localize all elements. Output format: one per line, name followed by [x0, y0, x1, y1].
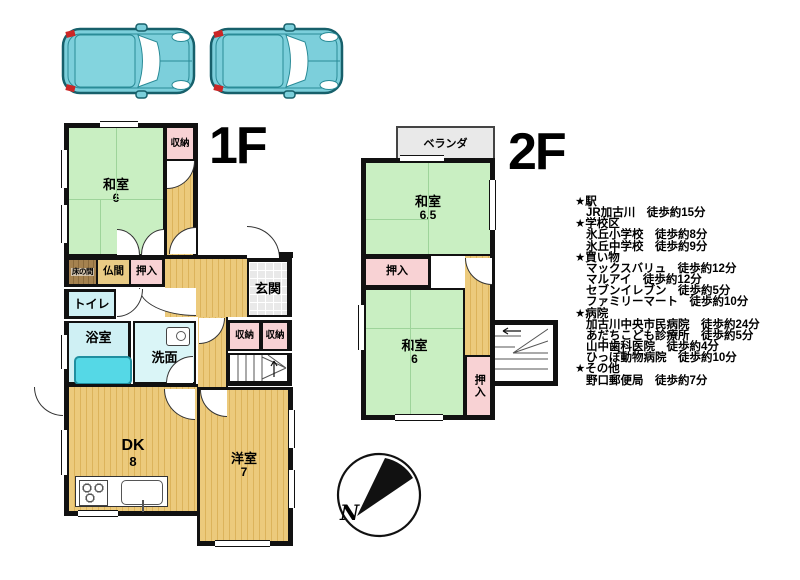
access-info-list: ★駅 JR加古川 徒歩約15分 ★学校区 氷丘小学校 徒歩約8分 氷丘中学校 徒… [575, 197, 797, 387]
window [61, 150, 68, 188]
bathtub-icon [74, 356, 132, 385]
floor-1-label: 1F [209, 116, 266, 176]
room-label: 洋室 [231, 452, 257, 466]
room-label: 和室 [401, 339, 427, 353]
kitchen-sink-icon [121, 480, 163, 505]
room-toilet-1f: トイレ [64, 289, 116, 319]
room-label: 仏間 [103, 266, 124, 277]
room-label: 押入 [136, 266, 157, 277]
room-oshiire-b-2f: 押入 [465, 355, 495, 420]
front-door-arc [247, 226, 280, 258]
room-shuno-b-1f: 収納 [261, 320, 292, 351]
window [61, 205, 68, 243]
kitchen-counter [75, 476, 168, 507]
room-shuno-top-1f: 収納 [165, 123, 198, 161]
info-heading: ★その他 [575, 364, 797, 375]
room-oshiire-1f: 押入 [131, 257, 165, 287]
stairs-2f [495, 320, 558, 386]
room-washitsu6-2f: 和室 6 [361, 288, 465, 420]
window [78, 510, 118, 517]
room-size: 8 [129, 455, 136, 469]
room-label: 収納 [235, 331, 254, 341]
room-tokonoma-1f: 床の間 [64, 257, 98, 287]
stairs-1f [228, 353, 292, 386]
room-oshiire-a-2f: 押入 [361, 256, 431, 288]
room-washitsu65-2f: 和室 6.5 [361, 158, 495, 256]
info-item: 氷丘小学校 徒歩約8分 [586, 230, 797, 241]
window [61, 430, 68, 475]
door-arc [139, 288, 196, 316]
stove-icon [79, 480, 108, 506]
room-label: DK [121, 438, 144, 455]
car-top-view-icon [60, 22, 198, 100]
window [61, 335, 68, 369]
room-bath-1f: 浴室 [64, 321, 131, 385]
room-label: 収納 [265, 331, 284, 341]
window [215, 540, 270, 547]
wall [279, 252, 293, 258]
sink-icon [166, 327, 190, 346]
veranda-label: ベランダ [424, 135, 468, 151]
room-label: 押入 [386, 266, 408, 278]
room-size: 7 [241, 466, 248, 479]
compass-icon [333, 449, 425, 541]
door-arc [34, 387, 63, 416]
info-item: 野口郵便局 徒歩約7分 [586, 376, 797, 387]
info-item: ファミリーマート 徒歩約10分 [586, 297, 797, 308]
room-butsuma-1f: 仏間 [98, 257, 131, 287]
room-genkan-1f: 玄関 [247, 258, 292, 317]
window [288, 410, 295, 448]
car-top-view-icon [208, 22, 346, 100]
room-label: 浴室 [85, 331, 111, 345]
compass-north-label: N [340, 500, 359, 525]
room-label: 押入 [473, 374, 485, 398]
window [288, 470, 295, 508]
floorplan-canvas: 1F 2F 和室 6 収納 床の間 仏間 押入 トイレ 浴室 洗面 [0, 0, 800, 580]
window [400, 155, 444, 162]
window [358, 305, 365, 350]
room-label: トイレ [73, 298, 109, 311]
room-label: 収納 [170, 139, 189, 149]
door-arc [117, 289, 143, 317]
room-shuno-a-1f: 収納 [228, 320, 261, 351]
window [395, 414, 443, 421]
room-size: 6 [411, 353, 418, 366]
room-label: 玄関 [255, 282, 281, 296]
window [100, 121, 138, 128]
window [489, 180, 496, 230]
floor-2-label: 2F [508, 122, 565, 182]
room-label: 床の間 [71, 268, 94, 276]
